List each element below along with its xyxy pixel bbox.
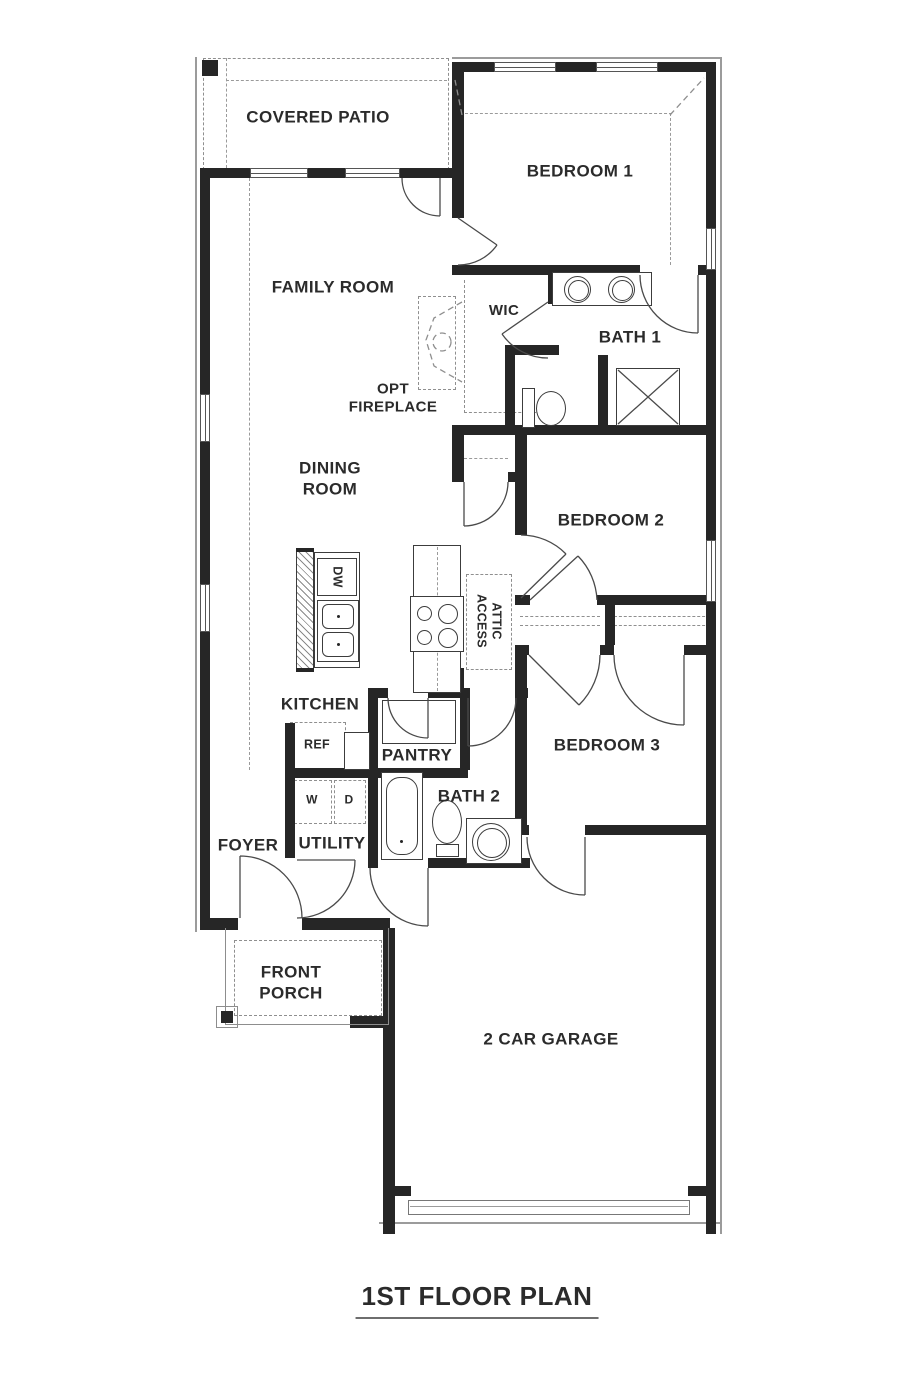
tray-diagonal bbox=[455, 78, 704, 115]
sink-drain-dot bbox=[337, 615, 340, 618]
tub-drain-dot bbox=[400, 840, 403, 843]
wall-segment bbox=[585, 825, 716, 835]
tray-ceiling-line-right bbox=[670, 113, 671, 265]
ceiling-break-line bbox=[249, 178, 250, 770]
wall-segment bbox=[688, 1186, 716, 1196]
wall-segment bbox=[285, 723, 295, 858]
bath1-toilet-bowl bbox=[536, 391, 566, 426]
burner bbox=[417, 606, 432, 621]
porch-column-inner bbox=[221, 1011, 233, 1023]
appliance-label-dishwasher: DW bbox=[329, 566, 344, 587]
bath1-shower bbox=[616, 368, 680, 426]
wall-segment bbox=[505, 350, 515, 428]
patio-inner-line bbox=[226, 80, 447, 81]
door-bedroom2-closet bbox=[530, 556, 597, 600]
wall-segment bbox=[597, 595, 716, 605]
door-bedroom1 bbox=[458, 218, 497, 265]
pantry-shelf bbox=[382, 700, 456, 744]
patio-inner-line-left bbox=[226, 58, 227, 168]
room-label-kitchen: KITCHEN bbox=[281, 695, 359, 716]
outline-right bbox=[720, 58, 722, 1234]
wall-segment bbox=[368, 858, 378, 868]
bath1-sink-left-ring bbox=[568, 280, 589, 301]
bath1-toilet-tank bbox=[522, 388, 535, 428]
wall-segment bbox=[452, 472, 464, 482]
window bbox=[200, 584, 210, 632]
ref-counter bbox=[344, 732, 370, 770]
door-bath2 bbox=[468, 698, 516, 746]
window bbox=[706, 540, 716, 602]
porch-line1: FRONT bbox=[261, 962, 322, 981]
wall-segment bbox=[515, 655, 527, 825]
closet-shelf-left bbox=[520, 616, 600, 626]
burner bbox=[417, 630, 432, 645]
island-bar-cap bbox=[296, 548, 314, 552]
linen-shelf bbox=[464, 458, 508, 459]
burner bbox=[438, 628, 458, 648]
wall-segment bbox=[515, 435, 527, 535]
window bbox=[494, 62, 556, 72]
window bbox=[706, 228, 716, 270]
wall-segment bbox=[210, 168, 455, 178]
wall-segment bbox=[460, 688, 470, 770]
room-label-bedroom-3: BEDROOM 3 bbox=[554, 736, 661, 757]
island-bar-hatch bbox=[296, 548, 314, 672]
wall-segment bbox=[515, 645, 529, 655]
room-label-bedroom-1: BEDROOM 1 bbox=[527, 162, 634, 183]
door-linen-closet bbox=[464, 482, 508, 526]
window bbox=[250, 168, 308, 178]
wall-segment bbox=[452, 72, 464, 218]
room-label-bath-2: BATH 2 bbox=[438, 787, 501, 808]
room-label-covered-patio: COVERED PATIO bbox=[246, 108, 389, 129]
annotation-opt-fireplace: OPT FIREPLACE bbox=[349, 381, 438, 418]
floor-plan: COVERED PATIO BEDROOM 1 FAMILY ROOM WIC … bbox=[0, 0, 900, 1378]
fireplace-box bbox=[418, 296, 456, 390]
wall-segment bbox=[383, 1186, 411, 1196]
porch-line2: PORCH bbox=[259, 983, 322, 1002]
opt-line2: FIREPLACE bbox=[349, 399, 438, 416]
burner bbox=[438, 604, 458, 624]
outline-top bbox=[452, 57, 722, 59]
room-label-front-porch: FRONT PORCH bbox=[259, 962, 322, 1003]
closet-shelf-right bbox=[614, 616, 710, 626]
opt-line1: OPT bbox=[377, 381, 409, 398]
door-front-entry bbox=[240, 856, 302, 918]
plan-title: 1ST FLOOR PLAN bbox=[356, 1281, 599, 1319]
wall-segment bbox=[452, 425, 716, 435]
appliance-label-dryer: D bbox=[344, 793, 353, 808]
wall-segment bbox=[516, 688, 528, 698]
room-label-wic: WIC bbox=[489, 302, 519, 320]
wall-segment bbox=[452, 62, 716, 72]
wall-segment bbox=[600, 645, 614, 655]
garage-door bbox=[408, 1200, 690, 1215]
wall-segment bbox=[605, 605, 615, 645]
window bbox=[200, 394, 210, 442]
room-label-family-room: FAMILY ROOM bbox=[272, 278, 394, 299]
window bbox=[596, 62, 658, 72]
appliance-label-washer: W bbox=[306, 793, 318, 808]
wall-segment bbox=[684, 645, 716, 655]
room-label-foyer: FOYER bbox=[218, 836, 279, 857]
annotation-attic-access: ATTIC ACCESS bbox=[473, 594, 504, 648]
room-label-dining-room: DINING ROOM bbox=[299, 458, 361, 499]
door-bedroom3-closet bbox=[614, 655, 684, 725]
room-label-bath-1: BATH 1 bbox=[599, 328, 662, 349]
island-bar-cap bbox=[296, 668, 314, 672]
bath2-tub-inner bbox=[386, 777, 418, 855]
dining-line1: DINING bbox=[299, 458, 361, 477]
bath1-sink-right-ring bbox=[612, 280, 633, 301]
porch-column bbox=[202, 60, 218, 76]
door-garage-hall bbox=[527, 837, 585, 895]
wall-segment bbox=[515, 595, 530, 605]
room-label-garage: 2 CAR GARAGE bbox=[483, 1030, 618, 1051]
wall-segment bbox=[598, 355, 608, 428]
tray-ceiling-line bbox=[460, 113, 672, 114]
attic-line1: ATTIC bbox=[489, 602, 503, 639]
wall-segment bbox=[368, 688, 378, 868]
outline-garage-bottom bbox=[379, 1222, 722, 1224]
door-patio bbox=[402, 178, 440, 216]
appliance-label-refrigerator: REF bbox=[304, 737, 330, 752]
wall-segment bbox=[285, 768, 468, 778]
window bbox=[345, 168, 400, 178]
dining-line2: ROOM bbox=[303, 479, 357, 498]
door-bedroom3 bbox=[529, 655, 600, 705]
bath2-toilet-base bbox=[436, 844, 459, 857]
bath2-sink-ring bbox=[477, 828, 507, 858]
door-bedroom2 bbox=[521, 535, 566, 598]
wall-segment bbox=[200, 168, 210, 930]
room-label-pantry: PANTRY bbox=[382, 746, 452, 767]
garage-door-line bbox=[410, 1206, 688, 1207]
room-label-bedroom-2: BEDROOM 2 bbox=[558, 511, 665, 532]
attic-line2: ACCESS bbox=[474, 594, 488, 648]
room-label-utility: UTILITY bbox=[298, 834, 365, 855]
outline-left bbox=[195, 57, 197, 932]
sink-drain-dot bbox=[337, 643, 340, 646]
door-utility bbox=[297, 860, 355, 918]
